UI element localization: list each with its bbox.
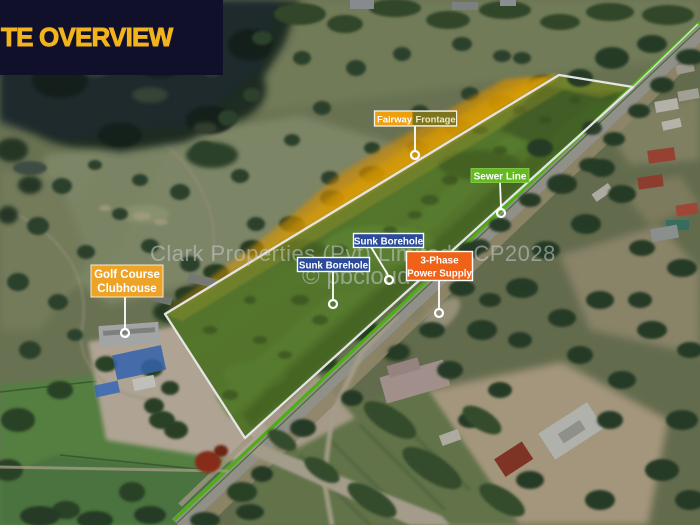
svg-text:Sewer Line: Sewer Line bbox=[474, 172, 527, 183]
svg-text:Sunk Borehole: Sunk Borehole bbox=[299, 261, 369, 272]
svg-text:Golf Course: Golf Course bbox=[94, 269, 160, 281]
svg-text:Sunk Borehole: Sunk Borehole bbox=[354, 237, 424, 248]
svg-text:3-Phase: 3-Phase bbox=[420, 256, 459, 267]
svg-text:Frontage: Frontage bbox=[416, 113, 456, 124]
svg-text:Clubhouse: Clubhouse bbox=[97, 283, 156, 295]
svg-text:TE OVERVIEW: TE OVERVIEW bbox=[1, 22, 174, 52]
svg-text:Power Supply: Power Supply bbox=[407, 269, 472, 280]
svg-text:Fairway: Fairway bbox=[377, 113, 413, 124]
